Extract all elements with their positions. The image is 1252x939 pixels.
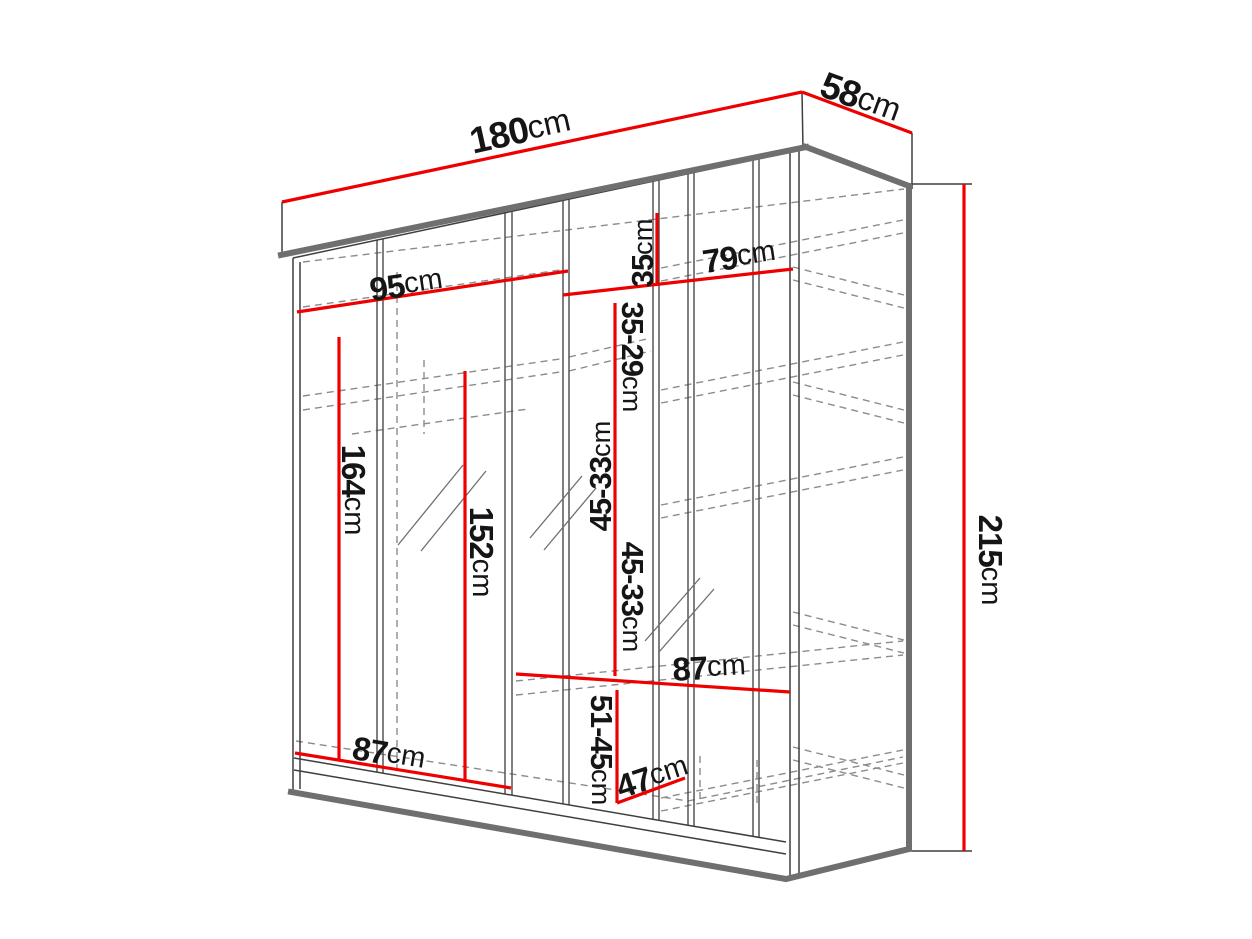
dim-label-shelf-gap-3: 45-33cm bbox=[616, 542, 651, 653]
diagram-canvas: 180cm 58cm 215cm 95cm 79cm 35cm 35-29cm … bbox=[0, 0, 1252, 939]
dim-label-middle-shelf-width: 87cm bbox=[671, 647, 746, 688]
dim-label-mirror-height: 152cm bbox=[464, 507, 501, 598]
dim-label-top-shelf-gap: 35cm bbox=[625, 219, 660, 288]
dim-label-shelf-gap-1: 35-29cm bbox=[616, 302, 651, 413]
dim-label-shelf-gap-2: 45-33cm bbox=[583, 421, 618, 532]
dim-label-left-hanging-height: 164cm bbox=[336, 445, 373, 536]
wardrobe-dimension-diagram: 180cm 58cm 215cm 95cm 79cm 35cm 35-29cm … bbox=[0, 0, 1252, 939]
dim-label-bottom-gap: 51-45cm bbox=[585, 695, 620, 806]
dim-label-total-height: 215cm bbox=[973, 515, 1010, 606]
